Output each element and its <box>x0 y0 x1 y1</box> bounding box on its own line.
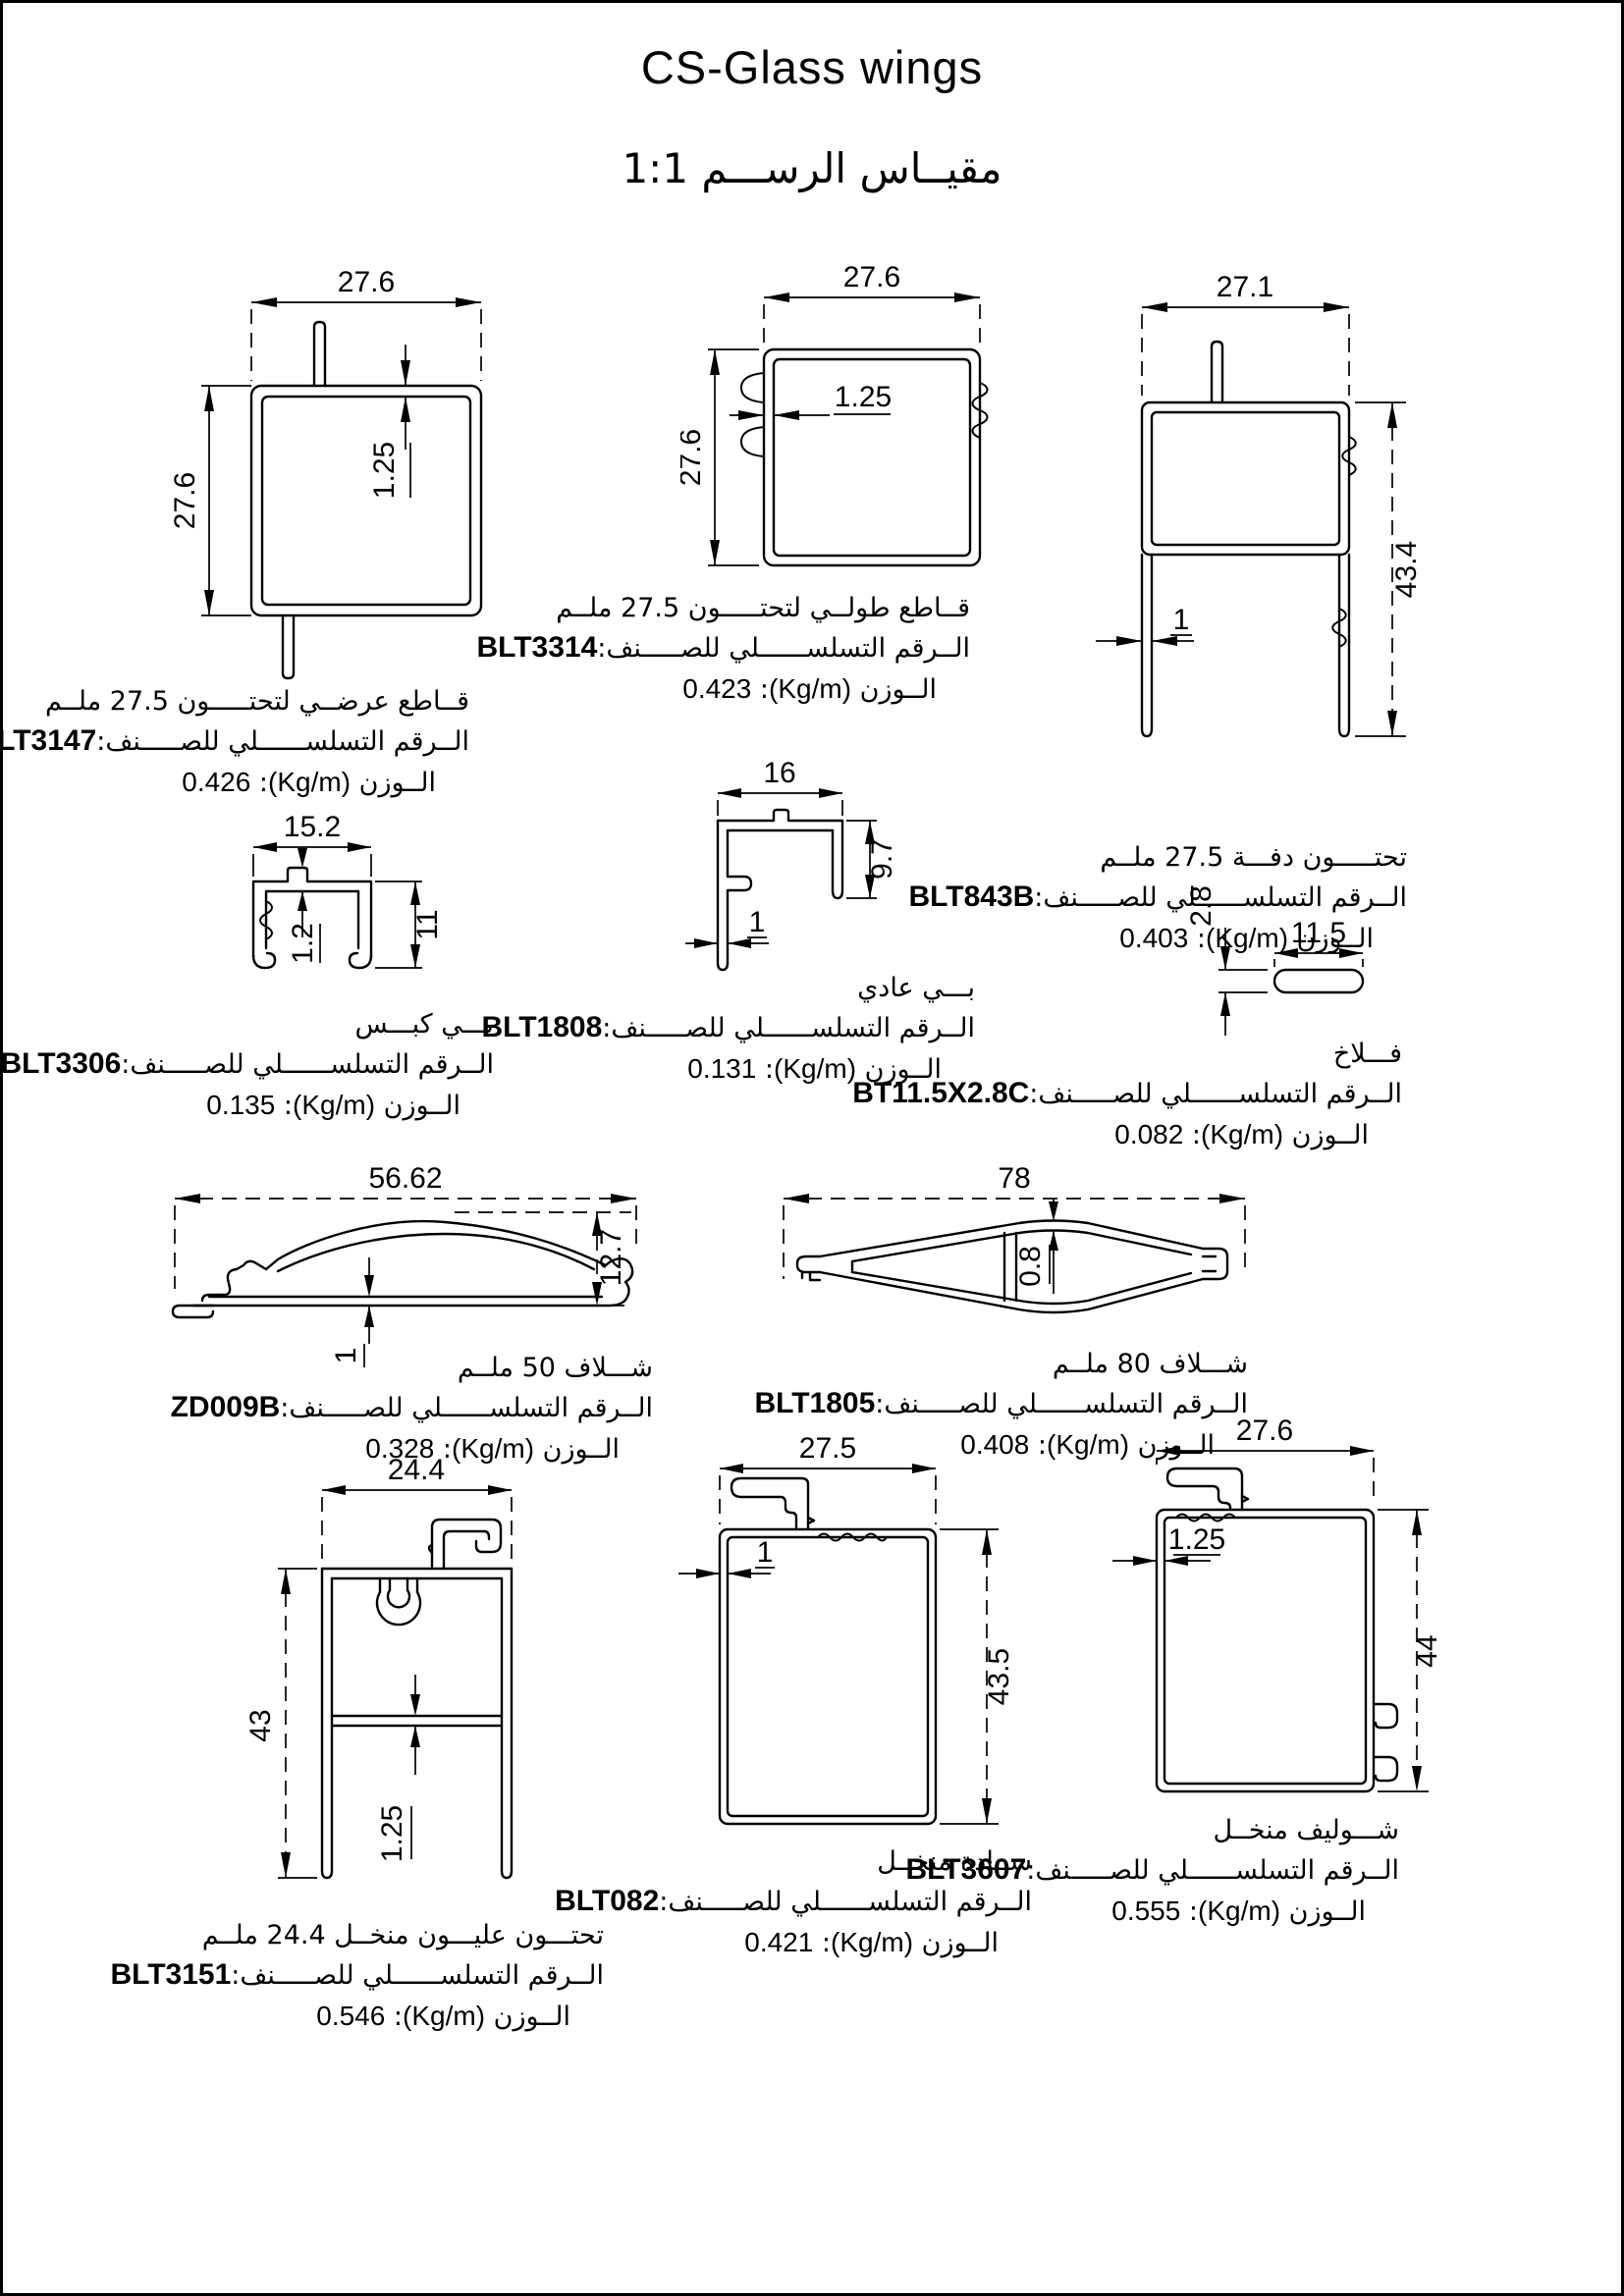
weight-value: 0.403 <box>1119 923 1188 953</box>
profile-weight-line: الــوزن (Kg/m): 0.082 <box>970 1115 1369 1154</box>
serial-prefix: الــرقم التسلســــــلي للصـــــنف: <box>1029 1079 1402 1109</box>
profile-code: BT11.5X2.8C <box>852 1077 1029 1109</box>
weight-unit: (Kg/m) <box>1047 1429 1129 1460</box>
profile-desc: شـــلاف 50 ملــم <box>260 1350 653 1387</box>
weight-value: 0.131 <box>687 1053 756 1084</box>
profile-serial-line: الــرقم التسلســــــلي للصـــــنف:BLT330… <box>101 1043 494 1086</box>
profile-desc: تحتـــون عليـــون منخــل 24.4 ملــم <box>152 1917 604 1954</box>
profile-desc: فـــلاخ <box>970 1036 1402 1073</box>
weight-unit: (Kg/m) <box>293 1090 375 1120</box>
dim-height: 12.7 <box>595 1229 627 1286</box>
profile-label-blt1805: شـــلاف 80 ملــم الــرقم التسلســــــلي … <box>855 1346 1248 1465</box>
profile-weight-line: الــوزن (Kg/m): 0.423 <box>577 669 937 709</box>
weight-unit: (Kg/m) <box>1206 923 1288 953</box>
serial-prefix: الــرقم التسلســــــلي للصـــــنف: <box>231 1960 604 1991</box>
dim-width: 15.2 <box>284 811 341 843</box>
weight-label: الــوزن <box>1289 1896 1366 1927</box>
weight-unit: (Kg/m) <box>452 1433 534 1464</box>
profile-label-blt3147: قــاطع عرضــي لتحتـــــون 27.5 ملــم الـ… <box>91 683 469 802</box>
profile-desc: بـــي كبـــس <box>101 1006 494 1043</box>
profile-serial-line: الــرقم التسلســــــلي للصـــــنف:ZD009B <box>260 1387 653 1429</box>
colon: : <box>760 674 769 705</box>
dim-height: 27.6 <box>169 472 201 529</box>
dim-wall: 1.25 <box>1168 1523 1225 1556</box>
dim-width: 27.6 <box>338 266 395 298</box>
weight-unit: (Kg/m) <box>403 2001 485 2031</box>
weight-unit: (Kg/m) <box>831 1927 913 1957</box>
profile-serial-line: الــرقم التسلســــــلي للصـــــنف:BLT180… <box>855 1383 1248 1425</box>
weight-value: 0.423 <box>682 673 751 704</box>
weight-unit: (Kg/m) <box>769 673 851 704</box>
profile-serial-line: الــرقم التسلســــــلي للصـــــنف:BLT331… <box>577 627 970 669</box>
serial-prefix: الــرقم التسلســــــلي للصـــــنف: <box>121 1049 494 1080</box>
serial-prefix: الــرقم التسلســــــلي للصـــــنف: <box>280 1393 653 1423</box>
profile-drawing-blt3607: 27.6 1.25 44 <box>1093 1412 1446 1853</box>
page-subtitle: مقيــاس الرســـم 1:1 <box>3 144 1621 192</box>
profile-code: BLT1805 <box>754 1387 875 1419</box>
dim-height: 11 <box>411 909 444 939</box>
serial-prefix: الــرقم التسلســــــلي للصـــــنف: <box>602 1013 975 1043</box>
profile-label-zd009b: شـــلاف 50 ملــم الــرقم التسلســــــلي … <box>260 1350 653 1468</box>
profile-desc: قــاطع عرضــي لتحتـــــون 27.5 ملــم <box>91 683 469 721</box>
weight-label: الــوزن <box>384 1091 460 1121</box>
weight-label: الــوزن <box>494 2002 570 2032</box>
profile-weight-line: الــوزن (Kg/m): 0.546 <box>152 1997 570 2036</box>
weight-unit: (Kg/m) <box>1201 1119 1283 1149</box>
dim-wall: 0.8 <box>1014 1246 1047 1287</box>
profile-code: BLT3147 <box>0 724 96 757</box>
colon: : <box>1189 1896 1198 1927</box>
colon: : <box>1192 1120 1201 1150</box>
profile-serial-line: الــرقم التسلســــــلي للصـــــنف:BLT315… <box>152 1954 604 1997</box>
dim-height: 43 <box>248 1709 277 1741</box>
serial-prefix: الــرقم التسلســــــلي للصـــــنف: <box>597 633 970 664</box>
weight-value: 0.135 <box>206 1090 275 1120</box>
colon: : <box>822 1928 831 1958</box>
dim-width: 27.5 <box>799 1432 856 1465</box>
weight-label: الــوزن <box>1297 924 1374 954</box>
dim-wall: 1.25 <box>368 442 401 499</box>
profile-code: BLT843B <box>908 881 1034 913</box>
weight-value: 0.082 <box>1114 1119 1183 1149</box>
colon: : <box>284 1091 293 1121</box>
dim-width: 27.1 <box>1217 271 1273 303</box>
profile-weight-line: الــوزن (Kg/m): 0.555 <box>987 1892 1366 1931</box>
dim-width: 78 <box>998 1162 1030 1195</box>
dim-height: 9.7 <box>866 838 898 880</box>
page-title: CS-Glass wings <box>3 40 1621 94</box>
profile-label-bt115x28c: فـــلاخ الــرقم التسلســــــلي للصـــــن… <box>970 1036 1402 1154</box>
weight-label: الــوزن <box>860 674 937 705</box>
dim-wall: 1 <box>757 1536 774 1569</box>
colon: : <box>1197 924 1206 954</box>
profile-serial-line: الــرقم التسلســــــلي للصـــــنف:BLT314… <box>91 721 469 763</box>
catalog-page: CS-Glass wings مقيــاس الرســـم 1:1 27.6… <box>0 0 1624 2296</box>
profile-code: BLT3607 <box>905 1853 1026 1886</box>
profile-desc: شـــلاف 80 ملــم <box>855 1346 1248 1383</box>
profile-desc: شـــوليف منخــل <box>987 1812 1399 1849</box>
weight-unit: (Kg/m) <box>268 767 351 797</box>
dim-wall: 1.2 <box>287 923 319 964</box>
colon: : <box>259 768 268 798</box>
dim-wall: 1 <box>1173 604 1190 636</box>
profile-serial-line: الــرقم التسلســــــلي للصـــــنف:BLT360… <box>987 1849 1399 1892</box>
profile-weight-line: الــوزن (Kg/m): 0.403 <box>1014 919 1374 958</box>
serial-prefix: الــرقم التسلســــــلي للصـــــنف: <box>659 1887 1032 1917</box>
profile-serial-line: الــرقم التسلســــــلي للصـــــنف:BT11.5… <box>970 1073 1402 1115</box>
weight-value: 0.408 <box>960 1429 1029 1460</box>
weight-label: الــوزن <box>1138 1430 1215 1461</box>
weight-value: 0.426 <box>182 767 250 797</box>
profile-drawing-blt3151: 24.4 43 1.25 <box>248 1451 602 1912</box>
profile-weight-line: الــوزن (Kg/m): 0.408 <box>855 1425 1215 1465</box>
profile-code: ZD009B <box>171 1391 281 1423</box>
dim-height: 44 <box>1411 1634 1443 1667</box>
profile-label-blt1808: بـــي عادي الــرقم التسلســــــلي للصـــ… <box>582 970 975 1089</box>
dim-height: 43.4 <box>1390 541 1423 598</box>
colon: : <box>1038 1430 1047 1461</box>
serial-prefix: الــرقم التسلســــــلي للصـــــنف: <box>1034 882 1407 913</box>
profile-desc: تحتـــــون دفـــة 27.5 ملــم <box>1014 839 1407 877</box>
profile-label-blt3151: تحتـــون عليـــون منخــل 24.4 ملــم الــ… <box>152 1917 604 2036</box>
serial-prefix: الــرقم التسلســــــلي للصـــــنف: <box>1026 1855 1399 1886</box>
dim-wall: 1.25 <box>835 381 892 413</box>
profile-weight-line: الــوزن (Kg/m): 0.426 <box>91 763 436 802</box>
profile-weight-line: الــوزن (Kg/m): 0.135 <box>101 1086 460 1125</box>
profile-label-blt843b: تحتـــــون دفـــة 27.5 ملــم الــرقم الت… <box>1014 839 1407 958</box>
profile-drawing-blt3314: 27.6 27.6 1.25 <box>680 260 1014 594</box>
dim-wall: 1 <box>749 906 766 938</box>
profile-label-blt3607: شـــوليف منخــل الــرقم التسلســــــلي ل… <box>987 1812 1399 1931</box>
profile-code: BLT3306 <box>0 1047 121 1080</box>
dim-width: 27.6 <box>843 261 900 294</box>
weight-label: الــوزن <box>543 1434 620 1465</box>
dim-height: 43.5 <box>983 1648 1015 1705</box>
profile-desc: قــاطع طولــي لتحتـــــون 27.5 ملــم <box>577 590 970 627</box>
profile-drawing-blt843b: 27.1 1 43.4 <box>1068 260 1481 849</box>
profile-label-blt3314: قــاطع طولــي لتحتـــــون 27.5 ملــم الـ… <box>577 590 970 709</box>
weight-unit: (Kg/m) <box>1198 1896 1280 1926</box>
profile-label-blt3306: بـــي كبـــس الــرقم التسلســــــلي للصـ… <box>101 1006 494 1125</box>
colon: : <box>394 2002 403 2032</box>
weight-value: 0.328 <box>365 1433 434 1464</box>
profile-weight-line: الــوزن (Kg/m): 0.328 <box>260 1429 620 1468</box>
weight-value: 0.421 <box>744 1927 813 1957</box>
profile-serial-line: الــرقم التسلســــــلي للصـــــنف:BLT843… <box>1014 877 1407 919</box>
dim-width: 56.62 <box>368 1162 442 1195</box>
profile-serial-line: الــرقم التسلســــــلي للصـــــنف:BLT180… <box>582 1007 975 1049</box>
profile-code: BLT3314 <box>476 631 597 664</box>
serial-prefix: الــرقم التسلســــــلي للصـــــنف: <box>96 726 469 757</box>
serial-prefix: الــرقم التسلســــــلي للصـــــنف: <box>875 1389 1248 1419</box>
dim-height: 27.6 <box>680 429 707 486</box>
profile-code: BLT3151 <box>110 1958 231 1991</box>
profile-desc: بـــي عادي <box>582 970 975 1007</box>
dim-wall: 1.25 <box>376 1805 408 1862</box>
dim-width: 16 <box>763 759 795 789</box>
weight-label: الــوزن <box>359 768 436 798</box>
profile-code: BLT1808 <box>481 1011 602 1043</box>
weight-value: 0.546 <box>316 2001 385 2031</box>
profile-drawing-blt082: 27.5 1 43.5 <box>641 1421 1034 1893</box>
weight-label: الــوزن <box>1292 1120 1369 1150</box>
profile-weight-line: الــوزن (Kg/m): 0.421 <box>620 1923 999 1962</box>
weight-label: الــوزن <box>922 1928 999 1958</box>
profile-code: BLT082 <box>555 1885 659 1917</box>
weight-unit: (Kg/m) <box>774 1053 856 1084</box>
weight-value: 0.555 <box>1111 1896 1180 1926</box>
colon: : <box>765 1054 774 1085</box>
colon: : <box>443 1434 452 1465</box>
